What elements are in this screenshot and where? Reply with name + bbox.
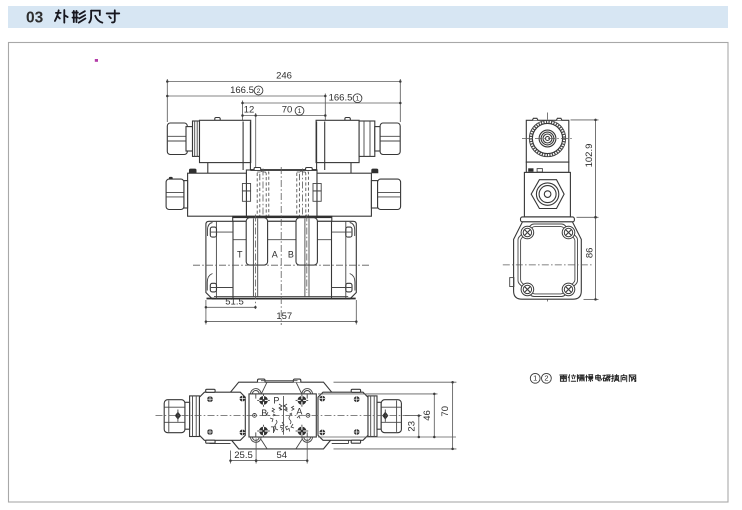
svg-text:P: P bbox=[273, 396, 279, 406]
svg-text:166.5: 166.5 bbox=[329, 93, 353, 104]
svg-text:B: B bbox=[288, 250, 294, 260]
svg-text:70: 70 bbox=[440, 406, 451, 417]
svg-text:70: 70 bbox=[282, 105, 293, 116]
svg-text:T: T bbox=[237, 250, 243, 260]
svg-text:23: 23 bbox=[406, 421, 417, 432]
svg-text:1: 1 bbox=[533, 374, 537, 383]
svg-text:A: A bbox=[272, 250, 278, 260]
svg-text:51.5: 51.5 bbox=[225, 296, 244, 307]
svg-text:03: 03 bbox=[26, 10, 44, 27]
svg-text:A: A bbox=[296, 407, 302, 417]
svg-text:T: T bbox=[271, 425, 277, 435]
svg-text:54: 54 bbox=[277, 450, 288, 461]
svg-text:246: 246 bbox=[276, 71, 292, 82]
svg-text:12: 12 bbox=[244, 105, 255, 116]
svg-text:86: 86 bbox=[585, 248, 596, 259]
svg-text:1: 1 bbox=[356, 96, 360, 103]
svg-text:157: 157 bbox=[276, 311, 292, 322]
svg-text:B: B bbox=[261, 408, 267, 418]
svg-text:166.5: 166.5 bbox=[230, 85, 254, 96]
svg-text:102.9: 102.9 bbox=[584, 144, 595, 168]
svg-text:2: 2 bbox=[544, 374, 548, 383]
svg-text:2: 2 bbox=[257, 88, 261, 95]
svg-text:25.5: 25.5 bbox=[234, 450, 253, 461]
svg-text:1: 1 bbox=[298, 108, 302, 115]
svg-text:46: 46 bbox=[422, 410, 433, 421]
